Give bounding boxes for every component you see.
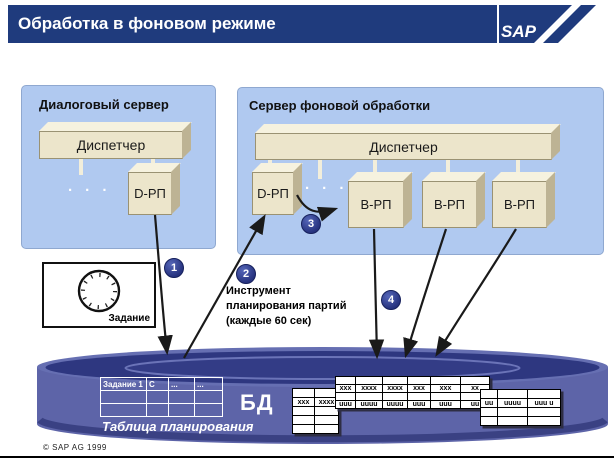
table-cell [195,391,223,404]
table-cell: ... [169,378,195,391]
table-cell [383,393,408,401]
table-cell [336,377,356,385]
db-table-a: xxxxxxx [292,388,339,434]
database-label: БД [240,390,274,416]
table-cell [481,390,498,399]
db-table-b: xxxxxxxxxxxxxxxxxxxuuuuuuuuuuuuuuuuuuu [335,376,490,409]
table-cell [431,377,461,385]
table-cell [293,416,315,425]
table-cell [528,417,561,426]
slide: Обработка в фоновом режиме SAP Диалоговы… [0,0,614,461]
table-cell: Задание 1 [101,378,147,391]
table-cell [461,377,490,385]
step-badge-1: 1 [164,258,184,278]
table-cell: uuuu [356,401,383,409]
table-cell [356,377,383,385]
table-cell [431,393,461,401]
table-cell: uuu [408,401,431,409]
table-cell: uuu [336,401,356,409]
table-cell [169,391,195,404]
step-badge-2: 2 [236,264,256,284]
table-cell [481,408,498,417]
table-cell [169,404,195,417]
table-cell [293,425,315,434]
table-cell [315,416,339,425]
step-badge-3: 3 [301,214,321,234]
table-cell [101,404,147,417]
table-cell [528,390,561,399]
table-cell: xxxx [356,385,383,393]
table-cell [498,417,528,426]
table-cell [498,408,528,417]
table-cell: xxx [336,385,356,393]
table-cell [408,377,431,385]
schedule-table-caption: Таблица планирования [102,419,253,434]
table-cell [147,391,169,404]
table-cell: С [147,378,169,391]
table-cell [101,391,147,404]
table-cell [408,393,431,401]
table-cell [293,407,315,416]
table-cell: xxx [431,385,461,393]
table-cell [147,404,169,417]
table-cell: uuu u [528,399,561,408]
schedule-table: Задание 1С...... [100,377,223,417]
table-cell [498,390,528,399]
db-table-c: uuuuuuuuu u [480,389,561,426]
table-cell [356,393,383,401]
table-cell [195,404,223,417]
table-cell: uuu [431,401,461,409]
table-cell [481,417,498,426]
table-cell [383,377,408,385]
table-cell [336,393,356,401]
table-cell: xxx [408,385,431,393]
table-cell: uu [481,399,498,408]
table-cell [293,389,315,398]
table-cell: xxx [293,398,315,407]
table-cell: uuuu [498,399,528,408]
step-badge-4: 4 [381,290,401,310]
table-cell: xxxx [383,385,408,393]
table-cell [528,408,561,417]
table-cell: uuuu [383,401,408,409]
table-cell: ... [195,378,223,391]
table-cell [315,425,339,434]
